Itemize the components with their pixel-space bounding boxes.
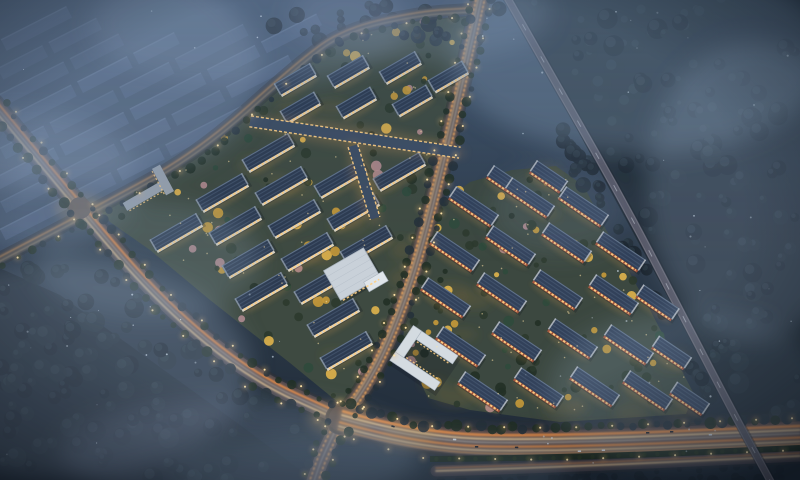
scene-rendering <box>0 0 800 480</box>
aerial-render-image <box>0 0 800 480</box>
vignette-overlay <box>0 0 800 480</box>
